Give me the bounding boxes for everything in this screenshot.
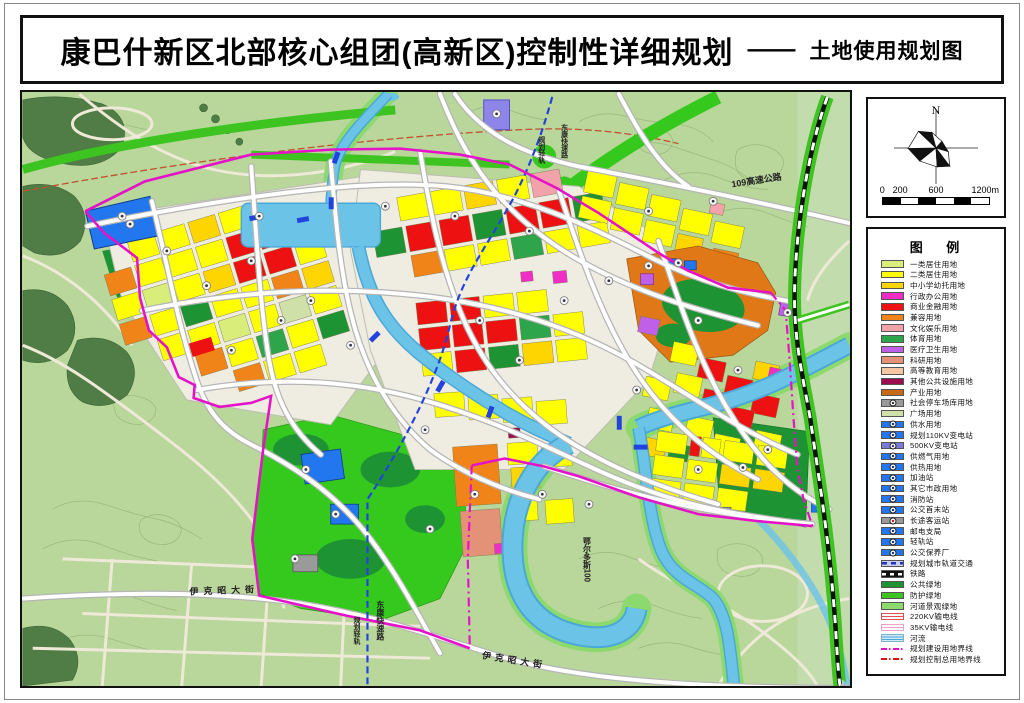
parcel-badge-dot (766, 448, 769, 451)
parcel-badge-dot (607, 279, 610, 282)
parcel-badge-dot (230, 349, 233, 352)
legend-item: 加油站 (881, 473, 998, 483)
legend-label: 其它市政用地 (910, 483, 957, 494)
legend-label: 公共绿地 (910, 579, 942, 590)
legend-swatch-power-icon (881, 613, 904, 621)
parcel-badge-dot (697, 468, 700, 471)
legend-item: 供燃气用地 (881, 451, 998, 461)
parcel-badge-dot (424, 428, 427, 431)
legend-label: 体育用地 (910, 333, 942, 344)
legend-label: 产业用地 (910, 387, 942, 398)
legend-item: 兼容用地 (881, 312, 998, 322)
parcel-badge-dot (528, 230, 531, 233)
legend-item: 轻轨站 (881, 537, 998, 547)
parcel-badge-dot (677, 261, 680, 264)
parcel-badge-dot (309, 299, 312, 302)
legend-item: 500KV变电站 (881, 441, 998, 451)
legend-label: 规划110KV变电站 (910, 430, 973, 441)
parcel-badge-dot (495, 112, 498, 115)
parcel-badge-dot (258, 215, 261, 218)
legend-item: 二类居住用地 (881, 270, 998, 280)
legend-swatch-solid-icon (881, 581, 904, 589)
legend-label: 供燃气用地 (910, 451, 949, 462)
legend-swatch-solid-icon (881, 335, 904, 343)
legend-item: 社会停车场库用地 (881, 398, 998, 408)
legend-item: 防护绿地 (881, 590, 998, 600)
legend-swatch-icon-icon (881, 474, 904, 482)
legend-item: 产业用地 (881, 387, 998, 397)
legend-swatch-icon-icon (881, 549, 904, 557)
parcel-badge-dot (165, 250, 168, 253)
legend-swatch-dash-icon (881, 645, 904, 653)
parcel-badge-dot (588, 503, 591, 506)
parcel-badge-dot (129, 223, 132, 226)
legend-item: 文化娱乐用地 (881, 323, 998, 333)
legend-item: 35KV输电线 (881, 622, 998, 632)
legend-item: 公交保养厂 (881, 548, 998, 558)
legend-title: 图 例 (881, 237, 998, 256)
legend-label: 商业金融用地 (910, 301, 957, 312)
legend-label: 加油站 (910, 472, 934, 483)
parcel-badge-dot (294, 557, 297, 560)
parcel-badge-dot (742, 466, 745, 469)
legend-label: 铁路 (910, 568, 926, 579)
legend-swatch-icon-icon (881, 463, 904, 471)
legend-swatch-solid-icon (881, 346, 904, 354)
legend-label: 供水用地 (910, 419, 942, 430)
legend-swatch-icon-icon (881, 517, 904, 525)
parcel-badge-dot (304, 468, 307, 471)
title-bar: 康巴什新区北部核心组团(高新区)控制性详细规划 —— 土地使用规划图 (20, 15, 1004, 84)
land-use-map: 109高速公路伊克昭大街伊克昭大街东康快速路规划轻轨鄂尔多斯100东康快速路规划… (20, 90, 852, 688)
legend-swatch-solid-icon (881, 324, 904, 332)
legend-item: 河道景观绿地 (881, 601, 998, 611)
legend-label: 行政办公用地 (910, 291, 957, 302)
parcel-badge-dot (453, 215, 456, 218)
legend-item: 中小学幼托用地 (881, 280, 998, 290)
legend-swatch-solid-icon (881, 356, 904, 364)
legend-item: 广场用地 (881, 409, 998, 419)
scale-labels: 0 200 600 1200m (880, 185, 992, 195)
legend-item: 一类居住用地 (881, 259, 998, 269)
map-canvas: 109高速公路伊克昭大街伊克昭大街东康快速路规划轻轨鄂尔多斯100东康快速路规划… (22, 92, 850, 686)
legend-swatch-solid-icon (881, 410, 904, 418)
legend-label: 规划控制总用地界线 (910, 654, 981, 665)
parcel-badge-dot (737, 369, 740, 372)
legend-label: 邮电支局 (910, 526, 942, 537)
legend-swatch-solid-icon (881, 303, 904, 311)
legend-label: 轻轨站 (910, 536, 934, 547)
map-label: 规划轻轨 (538, 135, 545, 165)
parcel-badge-dot (541, 493, 544, 496)
legend-swatch-solid-icon (881, 367, 904, 375)
parcel-badge-dot (697, 319, 700, 322)
map-label: 东康快速路 (375, 600, 385, 642)
legend-swatch-power-icon (881, 624, 904, 632)
parcel-badge-dot (518, 359, 521, 362)
compass-rose-icon (891, 107, 981, 185)
legend-list: 一类居住用地二类居住用地中小学幼托用地行政办公用地商业金融用地兼容用地文化娱乐用… (881, 259, 998, 665)
map-label: 东康快速路 (560, 123, 568, 160)
parcel-badge-dot (647, 264, 650, 267)
parcel-badge-dot (473, 493, 476, 496)
legend-swatch-river-icon (881, 634, 904, 642)
legend-swatch-icon-icon (881, 527, 904, 535)
legend-label: 消防站 (910, 494, 934, 505)
legend-swatch-solid-icon (881, 271, 904, 279)
legend-swatch-icon-icon (881, 399, 904, 407)
parcel-badge-dot (349, 344, 352, 347)
legend-item: 220KV输电线 (881, 612, 998, 622)
legend-item: 邮电支局 (881, 526, 998, 536)
parcel-badge-dot (280, 319, 283, 322)
legend-label: 河道景观绿地 (910, 601, 957, 612)
parcel-badge-dot (334, 513, 337, 516)
legend-label: 规划建设用地界线 (910, 643, 973, 654)
legend-swatch-icon-icon (881, 453, 904, 461)
parcel-badge-dot (786, 311, 789, 314)
legend-label: 其他公共设施用地 (910, 376, 973, 387)
legend-item: 规划110KV变电站 (881, 430, 998, 440)
parcel-badge-dot (121, 215, 124, 218)
legend-swatch-dash-icon (881, 656, 904, 664)
legend-swatch-solid-icon (881, 378, 904, 386)
legend-label: 220KV输电线 (910, 611, 958, 622)
page-subtitle: 土地使用规划图 (809, 35, 963, 65)
legend-label: 河流 (910, 633, 926, 644)
legend-item: 规划建设用地界线 (881, 644, 998, 654)
legend-swatch-icon-icon (881, 442, 904, 450)
legend-item: 规划控制总用地界线 (881, 654, 998, 664)
legend-item: 河流 (881, 633, 998, 643)
legend-item: 商业金融用地 (881, 302, 998, 312)
legend-label: 一类居住用地 (910, 259, 957, 270)
legend-swatch-icon-icon (881, 485, 904, 493)
legend-item: 消防站 (881, 494, 998, 504)
legend-label: 二类居住用地 (910, 269, 957, 280)
legend-label: 医疗卫生用地 (910, 344, 957, 355)
parcel-badge-dot (250, 259, 253, 262)
legend-swatch-icon-icon (881, 431, 904, 439)
legend: 图 例 一类居住用地二类居住用地中小学幼托用地行政办公用地商业金融用地兼容用地文… (866, 227, 1006, 676)
parcel-badge-dot (712, 200, 715, 203)
parcel-badge-dot (384, 205, 387, 208)
legend-label: 公交首末站 (910, 504, 949, 515)
compass-scale-box: N 0 200 600 1200m (866, 97, 1006, 218)
legend-label: 供热用地 (910, 462, 942, 473)
map-label: 规划轻轨 (353, 616, 360, 646)
parcel-badge-dot (478, 319, 481, 322)
legend-item: 其它市政用地 (881, 483, 998, 493)
legend-item: 公交首末站 (881, 505, 998, 515)
legend-swatch-solid-icon (881, 592, 904, 600)
legend-swatch-solid-icon (881, 282, 904, 290)
title-dash: —— (747, 36, 795, 64)
legend-label: 35KV输电线 (910, 622, 953, 633)
legend-swatch-icon-icon (881, 421, 904, 429)
legend-item: 其他公共设施用地 (881, 377, 998, 387)
legend-label: 社会停车场库用地 (910, 397, 973, 408)
legend-swatch-solid-icon (881, 260, 904, 268)
legend-item: 铁路 (881, 569, 998, 579)
legend-label: 广场用地 (910, 408, 942, 419)
parcel-badge-dot (563, 299, 566, 302)
legend-label: 科研用地 (910, 355, 942, 366)
legend-label: 文化娱乐用地 (910, 323, 957, 334)
legend-item: 长途客运站 (881, 516, 998, 526)
map-label: 鄂尔多斯100 (582, 536, 591, 583)
legend-swatch-metro-icon (881, 560, 904, 568)
legend-label: 规划城市轨道交通 (910, 558, 973, 569)
legend-item: 公共绿地 (881, 580, 998, 590)
legend-label: 500KV变电站 (910, 440, 958, 451)
legend-label: 中小学幼托用地 (910, 280, 965, 291)
legend-swatch-solid-icon (881, 314, 904, 322)
legend-label: 高等教育用地 (910, 365, 957, 376)
parcel-badge-dot (429, 528, 432, 531)
legend-label: 防护绿地 (910, 590, 942, 601)
legend-swatch-icon-icon (881, 506, 904, 514)
parcel-badge-dot (635, 389, 638, 392)
scale-bar (882, 197, 990, 205)
legend-label: 长途客运站 (910, 515, 949, 526)
legend-item: 规划城市轨道交通 (881, 558, 998, 568)
legend-item: 供水用地 (881, 419, 998, 429)
legend-swatch-rail-icon (881, 570, 904, 578)
parcel-badge-dot (205, 284, 208, 287)
legend-item: 高等教育用地 (881, 366, 998, 376)
legend-item: 供热用地 (881, 462, 998, 472)
legend-item: 科研用地 (881, 355, 998, 365)
page-title: 康巴什新区北部核心组团(高新区)控制性详细规划 (61, 28, 734, 72)
legend-swatch-icon-icon (881, 495, 904, 503)
legend-swatch-icon-icon (881, 538, 904, 546)
legend-label: 公交保养厂 (910, 547, 949, 558)
parcel-badge-dot (647, 210, 650, 213)
legend-item: 体育用地 (881, 334, 998, 344)
legend-item: 行政办公用地 (881, 291, 998, 301)
legend-item: 医疗卫生用地 (881, 345, 998, 355)
legend-swatch-solid-icon (881, 389, 904, 397)
legend-swatch-solid-icon (881, 292, 904, 300)
legend-swatch-solid-icon (881, 602, 904, 610)
legend-label: 兼容用地 (910, 312, 942, 323)
